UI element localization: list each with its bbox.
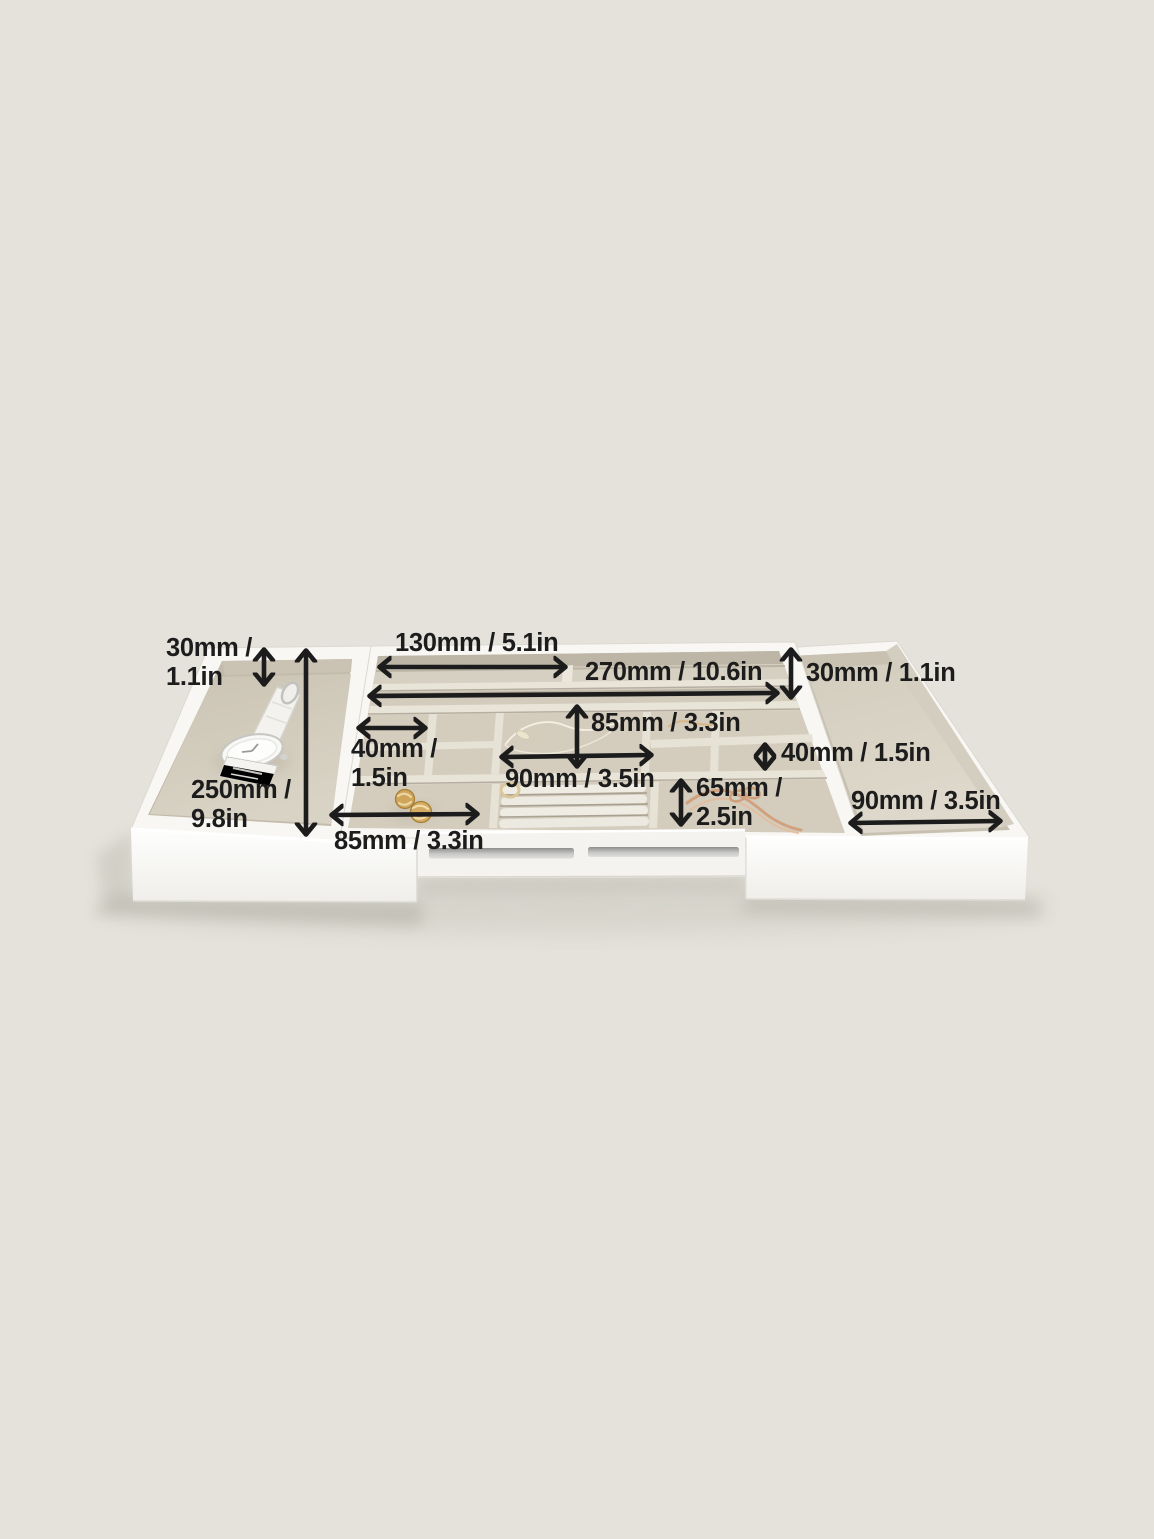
center-front-face [417,829,745,878]
right-drawer-front-panel [746,837,1028,900]
drawer-rail-left [429,848,574,859]
jewelry-tray-illustration [0,0,1154,1539]
arrow-top-slot-full-width [370,693,777,696]
arrow-center-compartment-width [502,755,651,757]
arrow-bottom-compartment-width [332,814,477,815]
product-dimension-image: 30mm / 1.1in 250mm / 9.8in 130mm / 5.1in… [0,0,1154,1539]
drawer-rail-right [588,847,739,857]
arrow-right-tray-width [851,821,1000,823]
